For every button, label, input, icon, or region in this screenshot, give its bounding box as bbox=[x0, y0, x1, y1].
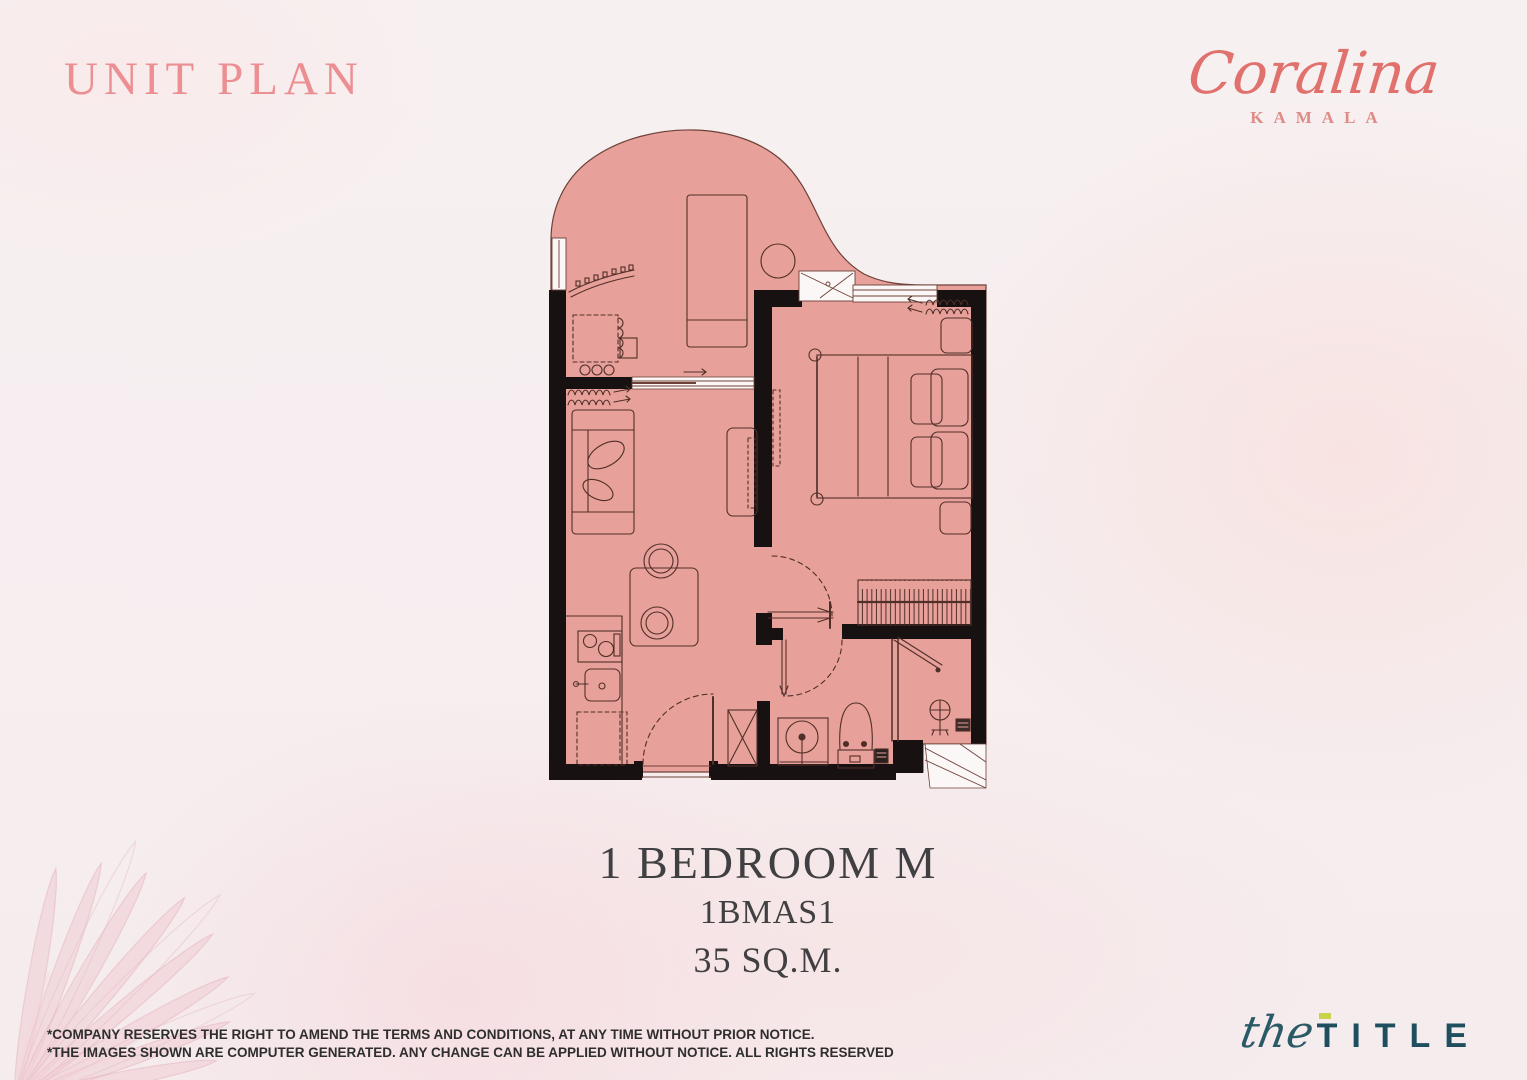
unit-code: 1BMAS1 bbox=[518, 890, 1018, 936]
developer-logo: the TITLE bbox=[1241, 1007, 1482, 1058]
wardrobe bbox=[858, 580, 971, 625]
page-title: UNIT PLAN bbox=[64, 52, 364, 106]
brand-name: Coralina bbox=[1156, 42, 1473, 104]
developer-logo-caps-text: TITLE bbox=[1317, 1017, 1481, 1055]
developer-logo-caps: TITLE bbox=[1317, 1017, 1481, 1056]
unit-area: 35 SQ.M. bbox=[518, 936, 1018, 984]
brand-location: KAMALA bbox=[1159, 108, 1469, 128]
unit-type: 1 BEDROOM M bbox=[518, 836, 1018, 890]
disclaimer-line-1: *COMPANY RESERVES THE RIGHT TO AMEND THE… bbox=[47, 1026, 894, 1044]
disclaimer: *COMPANY RESERVES THE RIGHT TO AMEND THE… bbox=[47, 1026, 894, 1062]
unit-info: 1 BEDROOM M 1BMAS1 35 SQ.M. bbox=[518, 836, 1018, 984]
brand-logo: Coralina KAMALA bbox=[1159, 42, 1469, 128]
disclaimer-line-2: *THE IMAGES SHOWN ARE COMPUTER GENERATED… bbox=[47, 1044, 894, 1062]
developer-logo-script: the bbox=[1236, 1007, 1317, 1058]
unit-plan-page: { "header": { "title": "UNIT PLAN", "col… bbox=[0, 0, 1527, 1080]
logo-accent-mark bbox=[1319, 1013, 1331, 1019]
